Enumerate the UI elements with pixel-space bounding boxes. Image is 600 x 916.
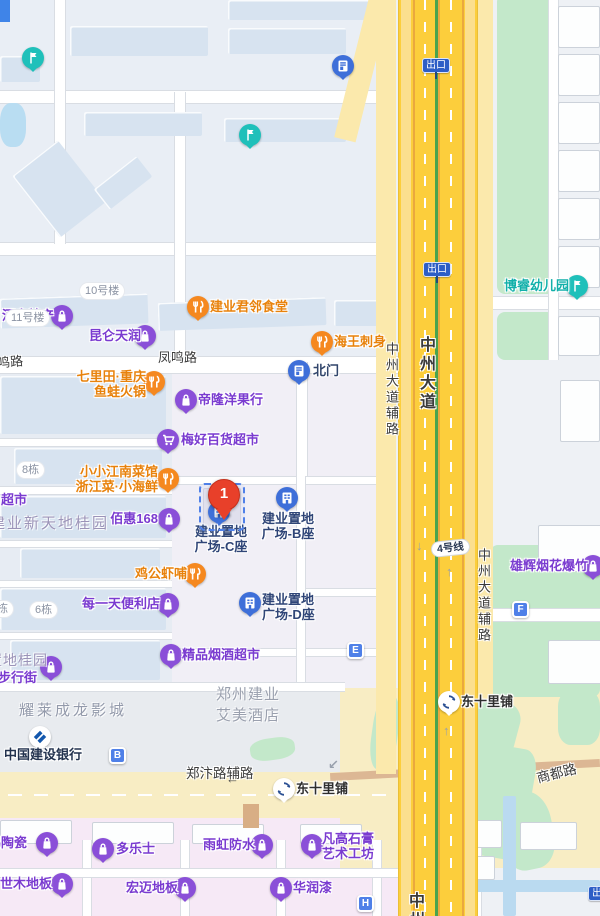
area-label: 郑州建业艾美酒店 [216, 683, 280, 725]
qilitian-hotpot-icon[interactable] [143, 371, 165, 393]
exit-sign: 出口 [423, 262, 451, 277]
metro-line-pill: 4号线 [430, 538, 470, 558]
road-label: 凤鸣路 [158, 347, 197, 366]
dongshilipu-station-1-icon[interactable] [438, 691, 460, 713]
baihui-168-label[interactable]: 佰惠168 [110, 511, 158, 526]
road-label: 中州大道辅路 [382, 342, 401, 438]
xiaoxiao-jiangnan-label[interactable]: 小小江南菜馆浙江菜·小海鲜 [74, 464, 158, 494]
dongshilipu-station-2-icon[interactable] [273, 778, 295, 800]
road-label: 中州大道 [413, 336, 437, 412]
building-pill: 11号楼 [6, 310, 49, 326]
building-pill: 栋 [0, 601, 13, 617]
road-label: 凤鸣路 [0, 350, 24, 372]
road-label: 郑汴路辅路 [186, 762, 254, 782]
xiaoxiao-jiangnan-icon[interactable] [157, 468, 179, 490]
jianye-plaza-d-icon[interactable] [239, 592, 261, 614]
jianye-canteen-label[interactable]: 建业君邻食堂 [210, 299, 290, 314]
dilong-fruit-icon[interactable] [175, 389, 197, 411]
letter-marker-E[interactable]: E [347, 642, 364, 659]
jigong-shrimp-icon[interactable] [184, 563, 206, 585]
peng-ceramics-icon[interactable] [36, 832, 58, 854]
gate-pin-top-icon[interactable] [332, 55, 354, 77]
jingpin-tobacco-label[interactable]: 精品烟酒超市 [182, 647, 262, 662]
duoleshi-label[interactable]: 多乐士 [116, 841, 158, 856]
area-label: 耀莱成龙影城 [19, 699, 127, 720]
fangao-gypsum-label[interactable]: 凡高石膏艺术工坊 [322, 831, 378, 861]
yuhong-waterproof-label[interactable]: 雨虹防水 [199, 837, 255, 852]
area-label: 置地桂园 [0, 650, 48, 670]
xionghui-fireworks-label[interactable]: 雄辉烟花爆竹 [508, 558, 588, 573]
area-label: 建业新天地桂园 [0, 512, 109, 533]
peng-ceramics-label[interactable]: 鹏陶瓷 [0, 835, 34, 850]
direction-arrow: ↓ [416, 538, 423, 553]
exit-sign: 出口 [588, 886, 600, 901]
exit-sign: 出口 [422, 58, 450, 73]
map-canvas[interactable]: 河南特产昆仑天润建业君邻食堂海王刺身北门七里田·重庆鱼蛙火锅帝隆洋果行梅好百货超… [0, 0, 600, 916]
huarun-paint-icon[interactable] [270, 877, 292, 899]
letter-marker-B[interactable]: B [109, 747, 126, 764]
haiwang-sashimi-icon[interactable] [311, 331, 333, 353]
selected-location-pin[interactable]: 1 [208, 479, 240, 511]
building-pill: 10号楼 [80, 283, 124, 299]
jingpin-tobacco-icon[interactable] [160, 644, 182, 666]
building-pill: 8栋 [17, 462, 44, 478]
north-gate-label[interactable]: 北门 [313, 363, 343, 378]
letter-marker-F[interactable]: F [512, 601, 529, 618]
marker-layer: 河南特产昆仑天润建业君邻食堂海王刺身北门七里田·重庆鱼蛙火锅帝隆洋果行梅好百货超… [0, 0, 600, 916]
road-label: 中州大道辅路 [474, 548, 493, 644]
dongshilipu-station-1-label[interactable]: 东十里铺 [461, 694, 517, 709]
north-gate-icon[interactable] [288, 360, 310, 382]
jianye-plaza-d-label[interactable]: 建业置地广场-D座 [262, 592, 320, 622]
meiyitian-store-label[interactable]: 每一天便利店 [80, 596, 160, 611]
shimu-flooring-label[interactable]: 世木地板 [0, 876, 54, 891]
baihui-168-icon[interactable] [158, 508, 180, 530]
jianye-plaza-b-icon[interactable] [276, 487, 298, 509]
hongmai-flooring-label[interactable]: 宏迈地板 [120, 880, 178, 895]
walking-street-label[interactable]: 步行街 [0, 670, 42, 685]
road-label: 商都路 [534, 757, 578, 786]
direction-arrow: ↑ [443, 723, 450, 738]
shimu-flooring-icon[interactable] [51, 873, 73, 895]
road-label: 中州 [402, 892, 426, 916]
direction-arrow: ↑ [446, 564, 453, 579]
kunlun-tianrun-label[interactable]: 昆仑天润 [85, 328, 141, 343]
letter-marker-H[interactable]: H [357, 895, 374, 912]
dongshilipu-station-2-label[interactable]: 东十里铺 [296, 781, 352, 796]
duoleshi-icon[interactable] [92, 838, 114, 860]
qilitian-hotpot-label[interactable]: 七里田·重庆鱼蛙火锅 [64, 369, 146, 399]
building-pill: 6栋 [30, 602, 57, 618]
borui-kindergarten-icon[interactable] [566, 275, 588, 297]
jianye-plaza-b-label[interactable]: 建业置地广场-B座 [260, 511, 316, 541]
meiyitian-store-icon[interactable] [157, 593, 179, 615]
chaoshi-partial-label[interactable]: 超市 [1, 492, 31, 507]
teal-pin-2-icon[interactable] [239, 124, 261, 146]
jigong-shrimp-label[interactable]: 鸡公虾哺 [131, 566, 187, 581]
jianye-canteen-icon[interactable] [187, 296, 209, 318]
meihao-supermarket-label[interactable]: 梅好百货超市 [181, 432, 261, 447]
huarun-paint-label[interactable]: 华润漆 [293, 880, 337, 895]
ccb-bank-icon[interactable] [29, 726, 51, 748]
direction-arrow: ↙ [328, 757, 339, 773]
fangao-gypsum-icon[interactable] [301, 834, 323, 856]
meihao-supermarket-icon[interactable] [157, 429, 179, 451]
dilong-fruit-label[interactable]: 帝隆洋果行 [198, 392, 268, 407]
teal-pin-1-icon[interactable] [22, 47, 44, 69]
borui-kindergarten-label[interactable]: 博睿幼儿园 [501, 278, 569, 293]
ccb-bank-label[interactable]: 中国建设银行 [4, 747, 84, 762]
direction-arrow: ← [226, 771, 239, 786]
